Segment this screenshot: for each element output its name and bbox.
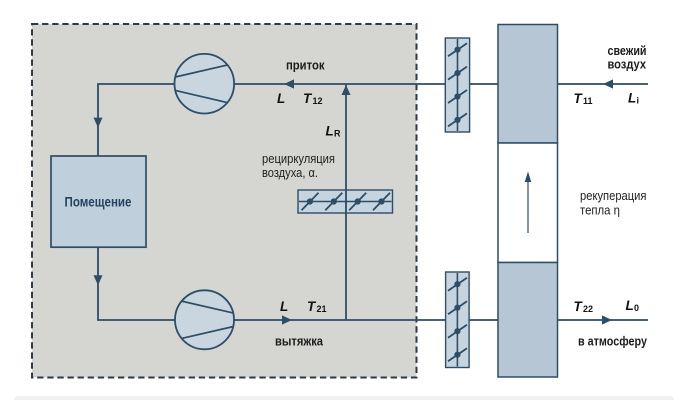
- svg-text:тепла η: тепла η: [580, 203, 620, 218]
- svg-text:21: 21: [317, 304, 327, 314]
- svg-text:Помещение: Помещение: [65, 195, 132, 210]
- svg-text:12: 12: [313, 96, 323, 106]
- svg-text:приток: приток: [286, 58, 325, 73]
- svg-text:вытяжка: вытяжка: [275, 334, 324, 349]
- svg-text:воздуха, α.: воздуха, α.: [262, 165, 318, 180]
- svg-text:L: L: [628, 91, 636, 106]
- svg-text:11: 11: [583, 96, 593, 106]
- svg-text:в атмосферу: в атмосферу: [578, 334, 648, 349]
- svg-text:рекуперация: рекуперация: [580, 188, 647, 203]
- svg-text:рециркуляция: рециркуляция: [262, 151, 335, 166]
- svg-text:22: 22: [583, 304, 593, 314]
- svg-text:0: 0: [634, 303, 639, 313]
- svg-text:L: L: [280, 299, 288, 314]
- svg-text:i: i: [637, 96, 640, 106]
- svg-text:L: L: [277, 91, 285, 106]
- svg-text:воздух: воздух: [608, 57, 647, 72]
- svg-text:R: R: [334, 129, 341, 139]
- svg-text:L: L: [326, 124, 334, 139]
- svg-text:L: L: [626, 298, 634, 313]
